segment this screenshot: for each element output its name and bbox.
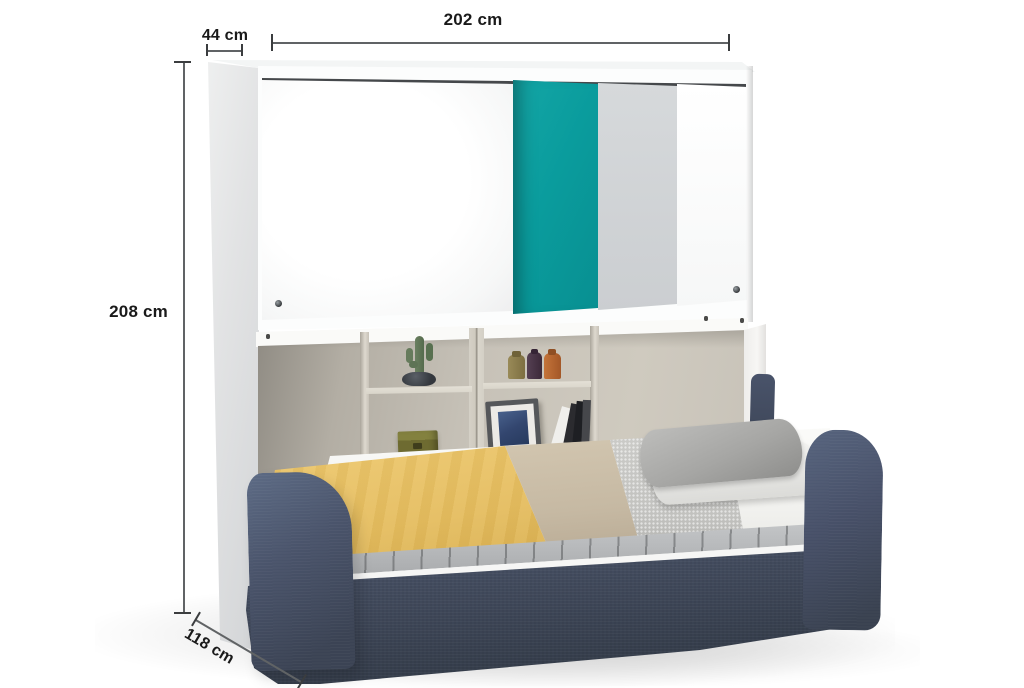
dimension-tick [206, 44, 208, 56]
product-dimension-diagram: 202 cm 44 cm 208 cm 118 cm [0, 0, 1024, 688]
armrest-left [246, 471, 355, 672]
dimension-tick [174, 61, 191, 63]
jar-olive [508, 355, 525, 379]
sliding-door-teal [513, 79, 598, 315]
sliding-door-grey [598, 82, 677, 312]
dimension-cabinet-depth-label: 44 cm [194, 27, 256, 45]
jar-plum [527, 352, 542, 379]
cactus-arm [426, 343, 433, 361]
armrest-right [802, 429, 883, 630]
picture-frame-art [498, 410, 529, 446]
hinge-dot [704, 316, 708, 321]
sliding-door-white-left [262, 78, 513, 320]
dimension-tick [271, 34, 273, 51]
dimension-tick [728, 34, 730, 51]
dimension-cabinet-depth-line [207, 50, 243, 52]
cactus-stem [415, 336, 424, 376]
hinge-dot [740, 318, 744, 323]
dimension-tick [174, 612, 191, 614]
cactus-pot [402, 372, 436, 386]
sliding-door-white-right [677, 84, 747, 310]
dimension-width-label: 202 cm [408, 10, 538, 30]
decor-jars [508, 349, 562, 379]
dimension-tick [241, 44, 243, 56]
door-knob-left [275, 300, 282, 307]
dimension-height-label: 208 cm [76, 302, 168, 322]
wardrobe-right-edge-shade [746, 66, 753, 322]
cactus-arm [409, 361, 418, 368]
hinge-dot [266, 334, 270, 339]
dimension-height-line [183, 62, 185, 614]
jar-rust [544, 353, 561, 379]
door-knob-right [733, 286, 740, 293]
dimension-width-line [272, 42, 730, 44]
decor-cactus [402, 334, 438, 386]
storage-box-latch [413, 443, 422, 449]
